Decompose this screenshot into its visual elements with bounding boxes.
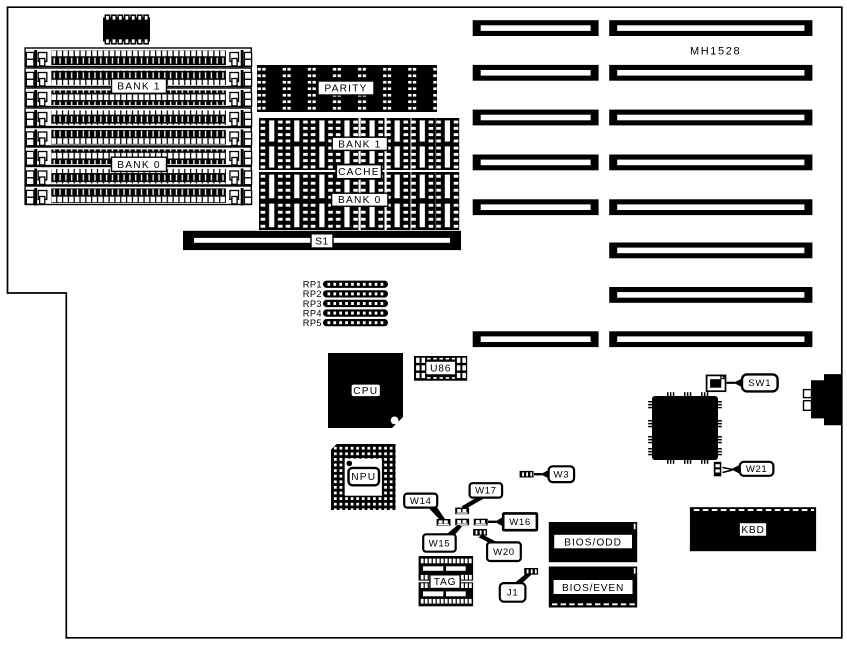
svg-text:W14: W14 [410, 496, 432, 507]
svg-text:W17: W17 [475, 486, 497, 497]
svg-text:BANK 1: BANK 1 [117, 82, 160, 93]
svg-text:W3: W3 [554, 469, 570, 480]
svg-text:NPU: NPU [351, 472, 376, 483]
svg-text:S1: S1 [315, 236, 328, 247]
svg-text:BANK 0: BANK 0 [117, 160, 160, 171]
svg-text:W21: W21 [746, 464, 768, 475]
svg-text:BIOS/ODD: BIOS/ODD [564, 537, 622, 548]
svg-text:CACHE: CACHE [338, 167, 380, 178]
svg-text:J1: J1 [507, 588, 518, 599]
svg-text:KBD: KBD [741, 525, 764, 536]
svg-text:CPU: CPU [353, 386, 378, 397]
svg-text:TAG: TAG [434, 577, 457, 588]
svg-text:RP3: RP3 [303, 299, 322, 309]
svg-text:BIOS/EVEN: BIOS/EVEN [562, 583, 624, 594]
svg-text:W20: W20 [493, 547, 515, 558]
svg-text:RP1: RP1 [303, 280, 322, 290]
svg-text:SW1: SW1 [748, 378, 771, 389]
svg-text:RP2: RP2 [303, 289, 322, 299]
svg-text:PARITY: PARITY [324, 83, 367, 94]
svg-text:BANK 1: BANK 1 [338, 139, 381, 150]
svg-text:RP5: RP5 [303, 318, 322, 328]
svg-text:U86: U86 [430, 363, 451, 374]
svg-text:MH1528: MH1528 [690, 46, 741, 58]
svg-text:W15: W15 [429, 538, 451, 549]
svg-text:W16: W16 [509, 517, 531, 528]
svg-text:RP4: RP4 [303, 308, 322, 318]
svg-text:BANK 0: BANK 0 [338, 195, 381, 206]
